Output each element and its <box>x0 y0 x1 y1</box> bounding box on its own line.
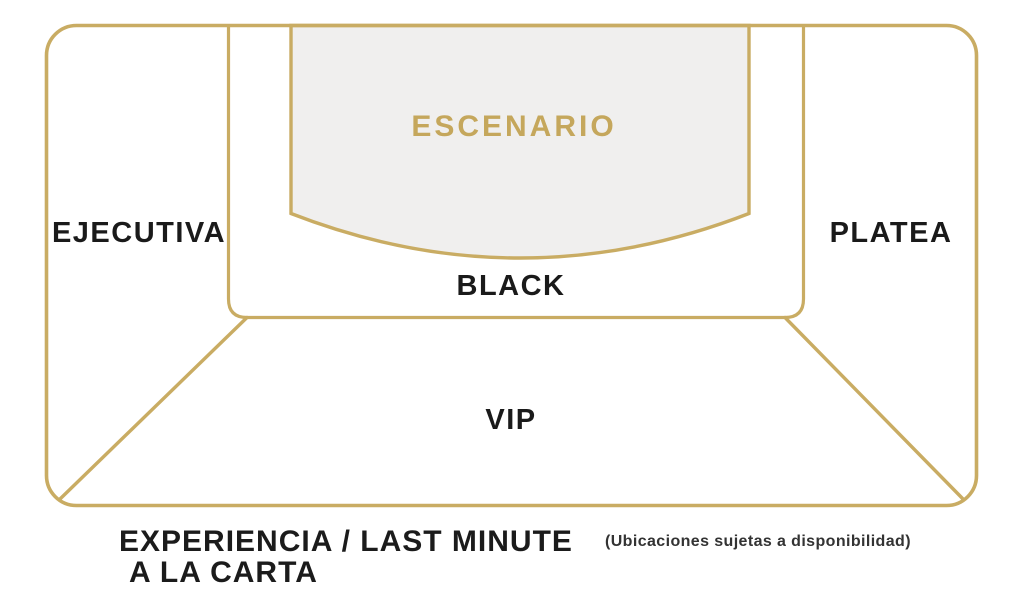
seating-map: ESCENARIO EJECUTIVA PLATEA BLACK VIP EXP… <box>0 0 1024 605</box>
section-label-ejecutiva[interactable]: EJECUTIVA <box>52 219 226 248</box>
section-label-black[interactable]: BLACK <box>457 272 566 301</box>
seating-map-canvas <box>0 0 1024 605</box>
section-label-vip[interactable]: VIP <box>485 406 536 435</box>
footer-heading-line1: EXPERIENCIA / LAST MINUTE <box>119 527 573 557</box>
availability-note: (Ubicaciones sujetas a disponibilidad) <box>605 534 911 550</box>
footer-heading-line2: A LA CARTA <box>129 558 318 588</box>
stage-label: ESCENARIO <box>411 112 616 142</box>
section-label-platea[interactable]: PLATEA <box>830 219 953 248</box>
